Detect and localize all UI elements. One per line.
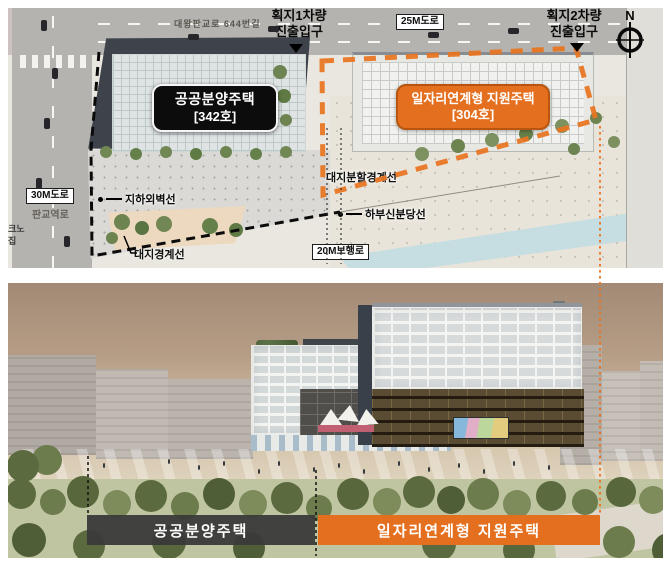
leader-dot [98,197,103,202]
left-edge-text: 크노 집 [8,224,25,247]
underground-wall-annotation: 지하외벽선 [98,191,176,207]
underground-wall-label: 지하외벽선 [125,191,176,207]
public-housing-caption: 공공분양주택 [154,520,249,541]
background-building [8,355,96,455]
car [188,34,199,40]
road-30m-label: 30M도로 [26,188,74,204]
car [44,118,50,129]
subway-annotation: 하부신분당선 [338,206,426,222]
park-trees [8,283,30,305]
compass: N [610,10,650,58]
car [64,236,70,247]
entrance2-line2: 진출입구 [537,24,611,40]
street-name-label: 대왕판교로 644번길 [174,17,260,30]
car [52,68,58,79]
public-housing-label-box: 공공분양주택 [342호] [152,84,278,132]
car [428,32,439,38]
lot-division-boundary-label: 대지분할경계선 [326,169,397,185]
public-housing-caption-bar: 공공분양주택 [87,515,315,545]
pangyeok-ro-label: 판교역로 [32,206,69,221]
left-edge-text-line2: 집 [8,236,25,248]
car [268,26,279,32]
support-housing-units: [304호] [452,107,494,123]
leader-dot [338,212,343,217]
support-housing-name: 일자리연계형 지원주택 [411,91,534,107]
car [508,28,519,34]
leader-line [346,213,362,215]
background-building [640,361,663,461]
landscaped-court [108,206,246,250]
road-25m-label: 25M도로 [396,14,444,30]
housing-complex-figure: 공공분양주택 [342호] 일자리연계형 지원주택 [304호] 대왕판교로 6… [0,0,670,569]
walkway-20m-label: 20M보행로 [312,244,369,260]
support-housing-caption: 일자리연계형 지원주택 [377,520,541,541]
entrance-banner [318,425,374,432]
compass-north-label: N [625,10,634,22]
support-housing-label-box: 일자리연계형 지원주택 [304호] [396,84,550,130]
entrance2-label: 획지2차량 진출입구 [537,8,611,39]
leader-line [106,198,122,200]
entrance2-line1: 획지2차량 [537,8,611,24]
perspective-render: 공공분양주택 일자리연계형 지원주택 [8,283,663,558]
public-housing-units: [342호] [194,109,236,125]
media-billboard [453,417,509,439]
crosswalk [20,55,86,68]
background-building [168,379,253,459]
support-housing-render [372,307,582,391]
support-housing-caption-bar: 일자리연계형 지원주택 [318,515,600,545]
plan-trees [8,8,20,20]
site-plan: 공공분양주택 [342호] 일자리연계형 지원주택 [304호] 대왕판교로 6… [8,8,663,268]
subway-label: 하부신분당선 [365,206,426,222]
left-edge-text-line1: 크노 [8,224,25,236]
compass-icon [613,22,647,58]
site-boundary-label: 대지경계선 [134,246,185,262]
people [8,283,10,288]
background-building [96,369,168,459]
entrance1-line1: 획지1차량 [262,8,336,24]
car [41,20,47,31]
public-housing-name: 공공분양주택 [175,91,255,109]
entrance1-label: 획지1차량 진출입구 [262,8,336,39]
car [36,178,42,189]
